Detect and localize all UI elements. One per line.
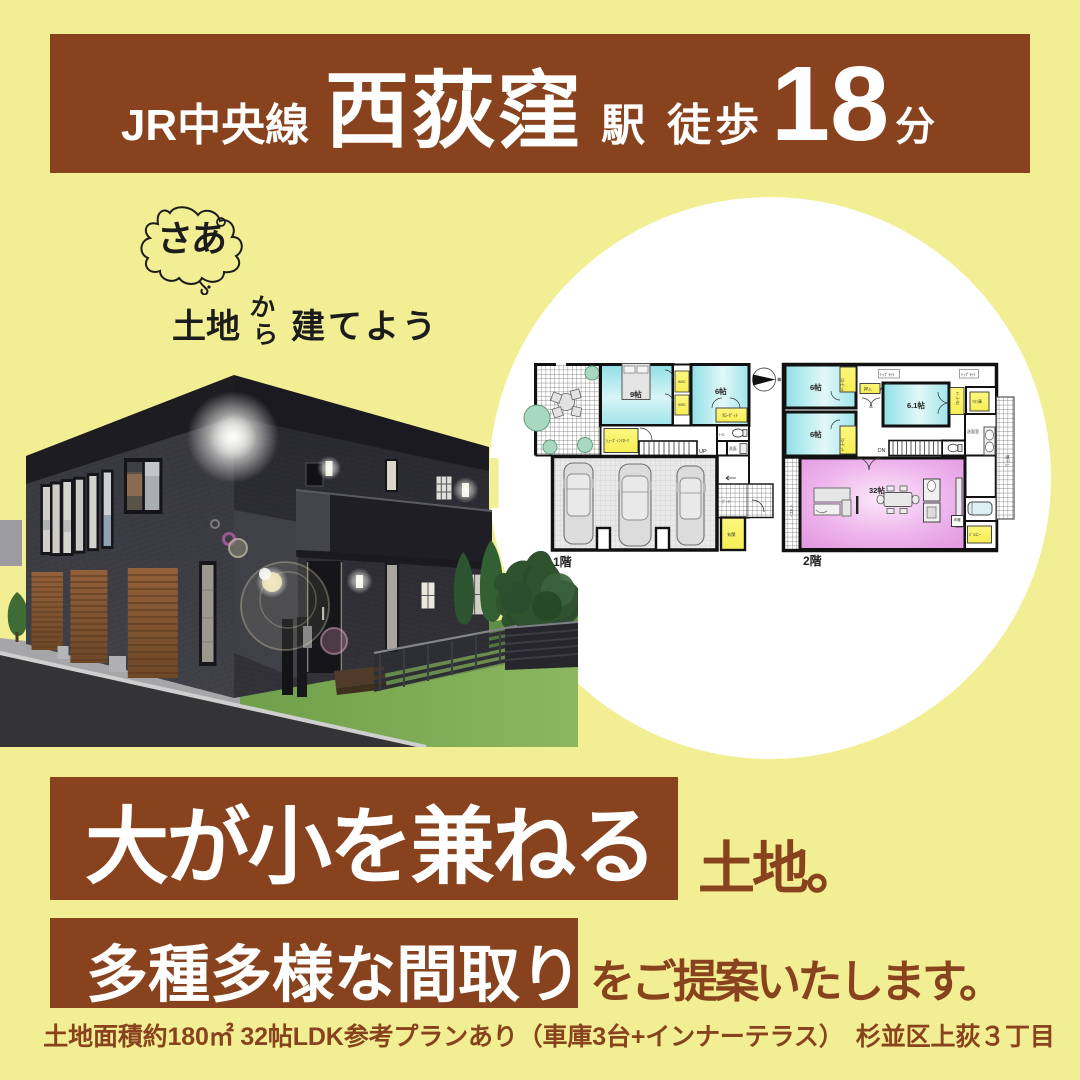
svg-text:DN: DN [878,448,886,454]
svg-text:ﾊﾞﾙｺﾆｰ: ﾊﾞﾙｺﾆｰ [789,505,794,517]
svg-text:WIC: WIC [678,379,686,384]
svg-text:ﾊﾞﾙｺﾆｰ: ﾊﾞﾙｺﾆｰ [969,532,981,537]
svg-text:ｸﾛｰｾﾞｯﾄ: ｸﾛｰｾﾞｯﾄ [955,392,960,405]
svg-text:床暖: 床暖 [954,517,962,522]
svg-text:ﾄｯﾌﾟﾗｲﾄ: ﾄｯﾌﾟﾗｲﾄ [961,371,976,378]
svg-text:さあ: さあ [157,218,225,259]
svg-text:6帖: 6帖 [810,429,822,439]
svg-text:6.1帖: 6.1帖 [907,400,925,410]
svg-text:ｸﾛｰｾﾞｯﾄ: ｸﾛｰｾﾞｯﾄ [840,378,845,391]
svg-text:ｸﾛｰｾﾞｯﾄ: ｸﾛｰｾﾞｯﾄ [840,438,845,451]
svg-text:ﾘﾈﾝ庫: ﾘﾈﾝ庫 [972,398,982,404]
svg-text:32帖: 32帖 [869,485,885,495]
svg-text:物干し: 物干し [1005,455,1011,467]
svg-text:9帖: 9帖 [630,389,642,399]
svg-text:2階: 2階 [803,553,822,568]
svg-text:洗面室: 洗面室 [967,428,979,434]
svg-text:玄関: 玄関 [727,531,735,538]
svg-text:ﾎﾟｰﾁ: ﾎﾟｰﾁ [722,498,730,504]
svg-text:洗面: 洗面 [729,446,737,451]
svg-text:押入: 押入 [864,386,872,392]
svg-text:ﾄｯﾌﾟﾗｲﾄ: ﾄｯﾌﾟﾗｲﾄ [880,371,895,378]
svg-text:6帖: 6帖 [810,382,822,392]
svg-text:UP: UP [699,449,707,455]
svg-text:WIC: WIC [678,402,686,407]
svg-text:6帖: 6帖 [715,386,727,396]
svg-text:ｸﾛｰｾﾞｯﾄ: ｸﾛｰｾﾞｯﾄ [722,412,738,418]
svg-text:ﾄｲﾚ: ﾄｲﾚ [719,432,725,437]
